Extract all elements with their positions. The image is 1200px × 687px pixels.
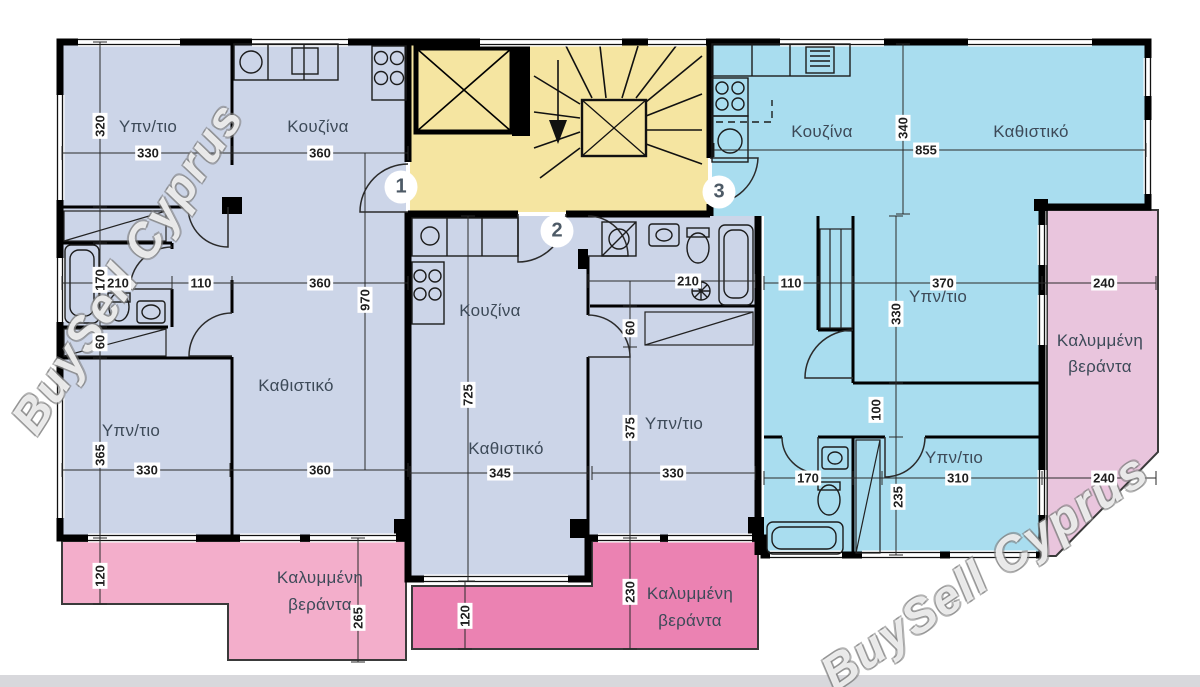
veranda-left-label-line2: βεράντα	[288, 595, 352, 615]
dim-veranda-right-top: 240	[1091, 276, 1117, 291]
apt3-kitchen-label: Κουζίνα	[791, 122, 853, 142]
entrance-badge-apt3: 3	[703, 176, 736, 209]
dim-apt3-corridor-height: 100	[869, 397, 884, 423]
dim-apt3-bedroom-top-height: 330	[889, 301, 904, 327]
apt3-bedroom-bottom-label: Υπν/τιο	[925, 448, 983, 468]
elevator-shaft	[416, 44, 530, 136]
dim-apt1-living-width-bottom: 360	[307, 463, 333, 478]
dim-veranda-right-bottom: 240	[1091, 471, 1117, 486]
veranda-middle-label-line1: Καλυμμένη	[647, 584, 733, 604]
dim-apt2-living-height: 725	[461, 382, 476, 408]
dim-apt2-bedroom-width: 330	[660, 466, 686, 481]
dim-apt3-bedroom-bottom-width: 310	[945, 471, 971, 486]
dim-apt1-bedroom-top-height: 320	[93, 113, 108, 139]
apt2-kitchen-label: Κουζίνα	[459, 301, 521, 321]
apt3-living-label: Καθιστικό	[993, 122, 1069, 142]
page-edge-strip	[0, 675, 1200, 687]
dim-apt1-bedroom-bottom-width: 330	[134, 463, 160, 478]
apt1-bedroom-bottom-label: Υπν/τιο	[102, 421, 160, 441]
veranda-right-label-line2: βεράντα	[1068, 357, 1132, 377]
apt2-bedroom-label: Υπν/τιο	[645, 414, 703, 434]
dim-apt1-bath-width: 210	[105, 276, 131, 291]
dim-apt1-closet-height: 60	[93, 333, 108, 351]
dim-apt3-width: 855	[913, 143, 939, 158]
apt1-kitchen-label: Κουζίνα	[287, 117, 349, 137]
dim-apt3-hall-width: 110	[779, 276, 804, 291]
dim-apt1-hall-width: 110	[189, 276, 214, 291]
apt2-living-label: Καθιστικό	[468, 439, 544, 459]
dim-apt2-bath-width: 210	[675, 274, 701, 289]
dim-apt1-kitchen-width: 360	[307, 146, 333, 161]
entrance-badge-apt2: 2	[541, 215, 574, 248]
dim-veranda-middle-strip: 120	[458, 603, 473, 629]
dim-apt1-living-width: 360	[307, 276, 333, 291]
dim-apt2-bedroom-height: 375	[623, 415, 638, 441]
dim-apt1-bedroom-top-width: 330	[135, 146, 161, 161]
dim-apt2-closet-height: 60	[623, 319, 638, 337]
dim-apt1-bedroom-bottom-height: 365	[93, 442, 108, 468]
floor-plan: BuySell Cyprus BuySell Cyprus 1 2 3 Υπν/…	[0, 0, 1200, 687]
veranda-middle-label-line2: βεράντα	[658, 611, 722, 631]
dim-apt3-bedroom-top-width: 370	[930, 276, 956, 291]
dim-apt3-kitchen-height: 340	[896, 115, 911, 141]
dim-apt3-wc-height: 235	[891, 484, 906, 510]
dim-apt2-living-width: 345	[487, 466, 513, 481]
dim-apt3-wc-width: 170	[795, 471, 821, 486]
dim-veranda-middle-height: 230	[623, 579, 638, 605]
dim-veranda-left-height: 265	[351, 605, 366, 631]
dim-apt1-living-height: 970	[358, 287, 373, 313]
veranda-left-label-line1: Καλυμμένη	[277, 568, 363, 588]
dim-veranda-left-strip: 120	[93, 563, 108, 589]
apt1-living-label: Καθιστικό	[258, 376, 334, 396]
entrance-badge-apt1: 1	[385, 171, 418, 204]
veranda-right-label-line1: Καλυμμένη	[1057, 331, 1143, 351]
apt1-bedroom-top-label: Υπν/τιο	[119, 117, 177, 137]
floor-plan-drawing	[0, 0, 1200, 687]
veranda-left	[62, 541, 406, 660]
